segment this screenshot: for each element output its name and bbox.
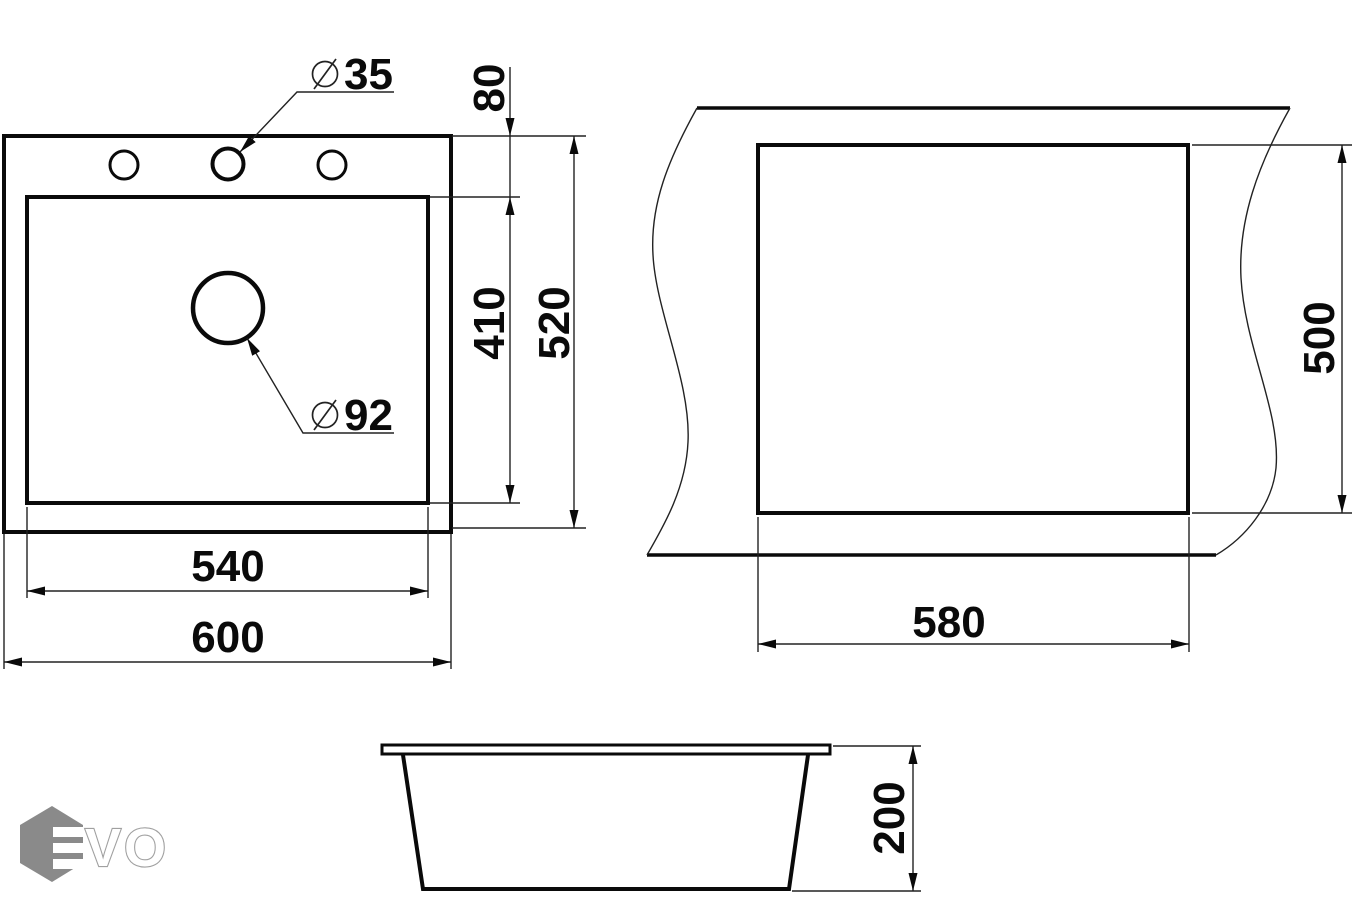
cutout-view: 580 500 [647, 108, 1352, 652]
dim-drain-hole-diameter: 92 [344, 391, 393, 440]
arrowhead [506, 118, 515, 136]
arrowhead [570, 136, 579, 154]
dim-bowl-depth: 410 [465, 286, 514, 359]
arrowhead [1338, 145, 1347, 163]
countertop-break-line-left [647, 108, 697, 555]
evo-logo: VO [20, 806, 169, 882]
arrowhead [909, 746, 918, 764]
sink-body-profile [403, 755, 808, 889]
leader-drain-diameter: 92 [247, 338, 394, 440]
faucet-hole-center [213, 149, 244, 180]
arrowhead [570, 510, 579, 528]
dim-cutout-depth: 500 [1295, 301, 1344, 374]
logo-vo-text: VO [85, 818, 169, 878]
dim-faucet-offset: 80 [465, 64, 514, 113]
leader-line [240, 92, 394, 152]
arrowhead [4, 658, 22, 667]
cutout-rect [758, 145, 1188, 513]
arrowhead [506, 485, 515, 503]
section-view: 200 [382, 745, 921, 891]
arrowhead [410, 587, 428, 596]
arrowhead [27, 587, 45, 596]
countertop-break-line-right [1216, 108, 1290, 555]
dim-overall-depth: 520 [530, 286, 579, 359]
dim-sink-height: 200 [865, 781, 914, 854]
sink-technical-drawing: 35 92 80 410 520 540 600 [0, 0, 1353, 900]
arrowhead [758, 640, 776, 649]
drain-hole [193, 273, 263, 343]
dim-overall-width: 600 [191, 613, 264, 662]
faucet-hole-left [110, 151, 138, 179]
dim-bowl-width: 540 [191, 542, 264, 591]
arrowhead [909, 873, 918, 891]
dim-faucet-hole-diameter: 35 [344, 50, 393, 99]
bowl-outline [27, 197, 428, 503]
drawing-canvas: 35 92 80 410 520 540 600 [0, 0, 1353, 900]
logo-e-bars [53, 827, 85, 869]
arrowhead [247, 338, 260, 356]
arrowhead [1171, 640, 1189, 649]
arrowhead [506, 197, 515, 215]
dim-cutout-width: 580 [912, 598, 985, 647]
faucet-hole-right [318, 151, 346, 179]
top-view: 35 92 80 410 520 540 600 [4, 50, 586, 669]
sink-rim-profile [382, 745, 830, 754]
arrowhead [433, 658, 451, 667]
diameter-icon [313, 59, 338, 89]
diameter-icon [313, 400, 338, 430]
arrowhead [1338, 495, 1347, 513]
